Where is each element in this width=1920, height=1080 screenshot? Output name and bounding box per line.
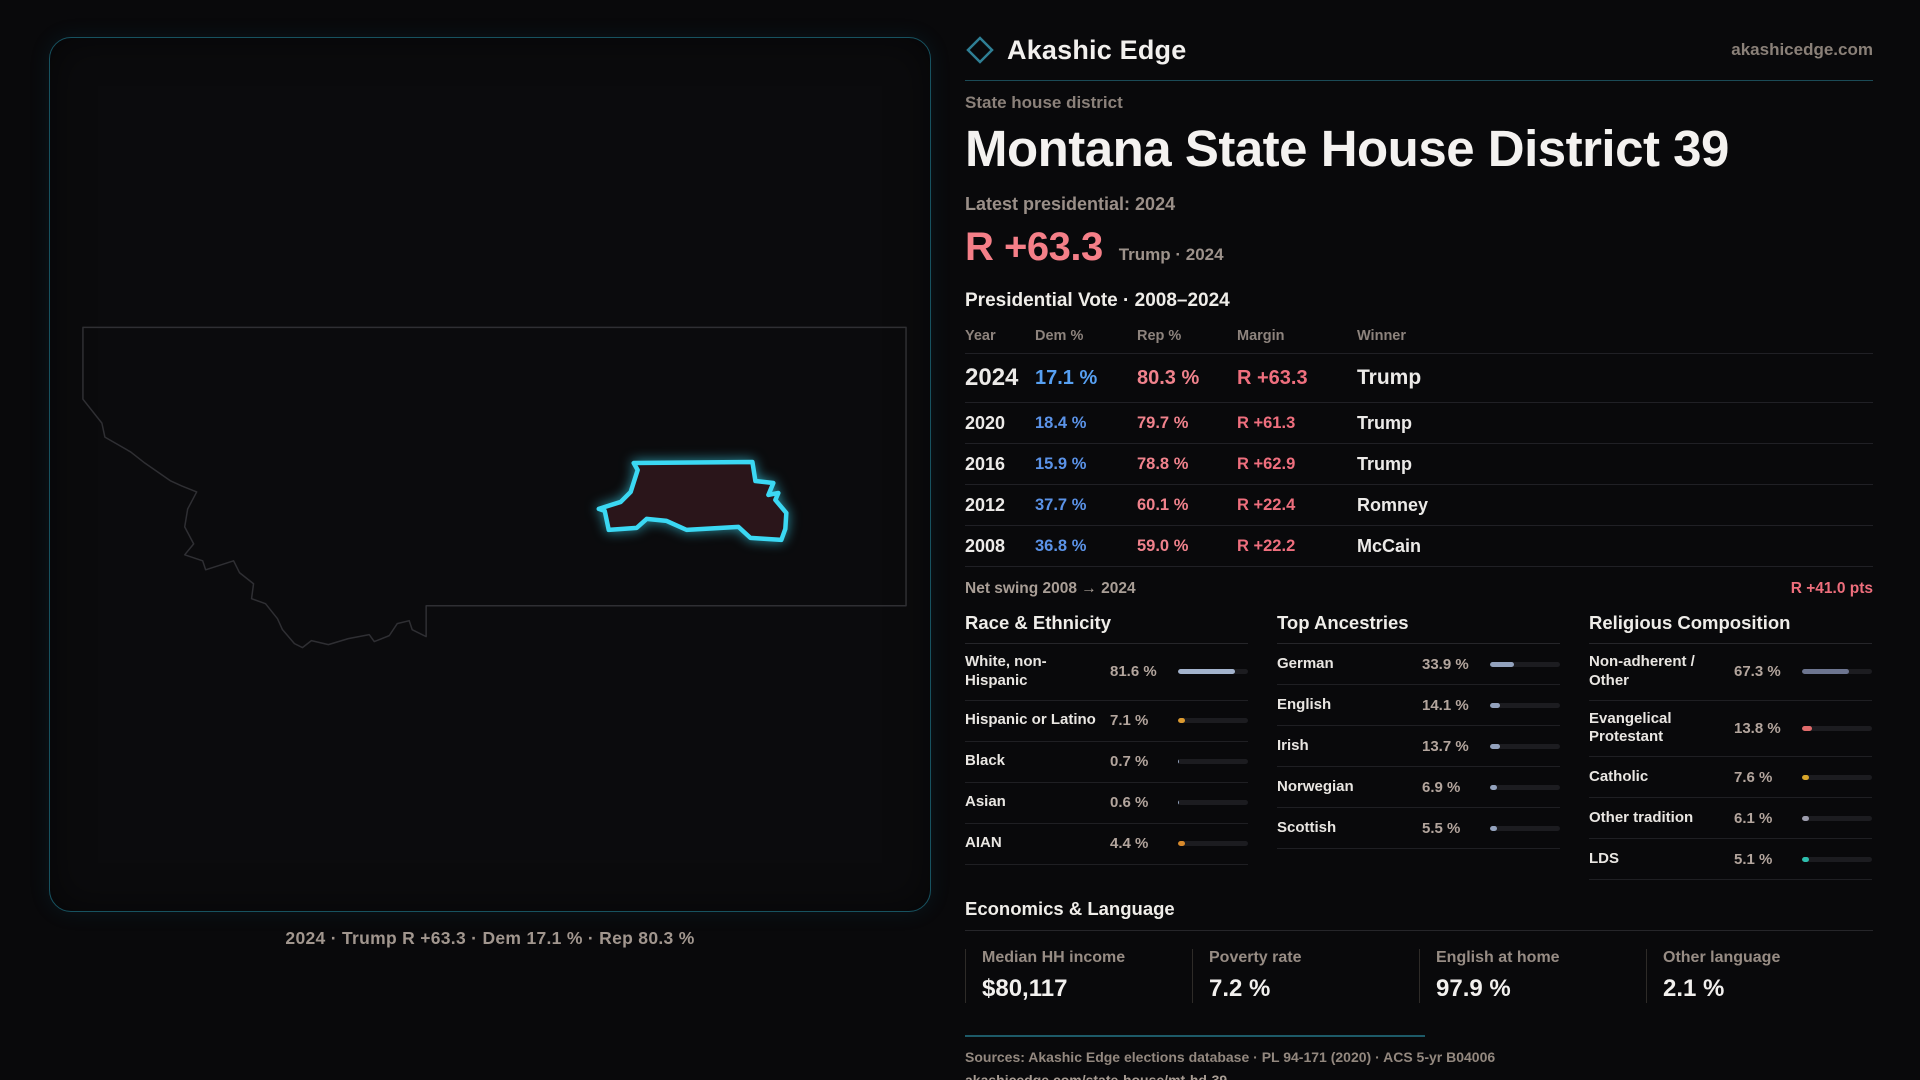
section-title: Top Ancestries: [1277, 612, 1560, 644]
bar-track: [1490, 785, 1560, 790]
bar-track: [1490, 662, 1560, 667]
margin-cell: R +63.3: [1237, 367, 1357, 390]
econ-stat-value: 7.2 %: [1209, 975, 1419, 1003]
dem-cell: 18.4 %: [1035, 414, 1137, 433]
latest-presidential-label: Latest presidential: 2024: [965, 194, 1873, 215]
stat-value: 7.6 %: [1734, 769, 1794, 786]
econ-stat-value: $80,117: [982, 975, 1192, 1003]
bar-track: [1178, 841, 1248, 846]
headline-margin-row: R +63.3 Trump · 2024: [965, 225, 1873, 270]
stat-bar-row: Norwegian6.9 %: [1277, 767, 1560, 808]
stat-label: Evangelical Protestant: [1589, 710, 1726, 748]
bar-fill: [1802, 726, 1812, 731]
demo-section: Religious CompositionNon-adherent / Othe…: [1589, 612, 1872, 880]
stat-label: Scottish: [1277, 819, 1414, 838]
permalink[interactable]: akashicedge.com/state-house/mt-hd-39: [965, 1072, 1227, 1080]
stat-bar-row: English14.1 %: [1277, 685, 1560, 726]
demo-section: Top AncestriesGerman33.9 %English14.1 %I…: [1277, 612, 1560, 880]
net-swing-value: R +41.0 pts: [1791, 580, 1873, 598]
table-row: 202417.1 %80.3 %R +63.3Trump: [965, 354, 1873, 403]
stat-bar-row: Evangelical Protestant13.8 %: [1589, 701, 1872, 758]
col-header-margin: Margin: [1237, 328, 1357, 344]
stat-value: 6.9 %: [1422, 779, 1482, 796]
bar-track: [1178, 669, 1248, 674]
map-pane: 2024 · Trump R +63.3 · Dem 17.1 % · Rep …: [49, 37, 931, 1080]
bar-fill: [1490, 744, 1500, 749]
econ-stat-label: English at home: [1436, 949, 1646, 967]
map-panel: [49, 37, 931, 912]
stat-value: 14.1 %: [1422, 697, 1482, 714]
montana-map: [50, 38, 930, 911]
bar-fill: [1490, 703, 1500, 708]
stat-label: German: [1277, 655, 1414, 674]
net-swing-row: Net swing 2008 → 2024 R +41.0 pts: [965, 567, 1873, 598]
year-cell: 2012: [965, 495, 1035, 516]
stat-bar-row: Scottish5.5 %: [1277, 808, 1560, 849]
stat-value: 5.1 %: [1734, 851, 1794, 868]
col-header-winner: Winner: [1357, 328, 1873, 344]
econ-stat: Other language2.1 %: [1646, 949, 1873, 1003]
stat-label: Hispanic or Latino: [965, 711, 1102, 730]
diamond-logo-icon: [965, 35, 995, 65]
map-caption: 2024 · Trump R +63.3 · Dem 17.1 % · Rep …: [49, 928, 931, 949]
site-link[interactable]: akashicedge.com: [1731, 40, 1873, 60]
bar-fill: [1802, 669, 1849, 674]
margin-cell: R +22.4: [1237, 496, 1357, 515]
winner-cell: Trump: [1357, 454, 1873, 475]
year-cell: 2016: [965, 454, 1035, 475]
table-row: 201237.7 %60.1 %R +22.4Romney: [965, 485, 1873, 526]
col-header-year: Year: [965, 328, 1035, 344]
stat-label: AIAN: [965, 834, 1102, 853]
stat-value: 5.5 %: [1422, 820, 1482, 837]
bar-fill: [1490, 826, 1497, 831]
table-row: 202018.4 %79.7 %R +61.3Trump: [965, 403, 1873, 444]
headline-margin-context: Trump · 2024: [1119, 245, 1224, 265]
table-row: 201615.9 %78.8 %R +62.9Trump: [965, 444, 1873, 485]
page-title: Montana State House District 39: [965, 119, 1873, 178]
margin-cell: R +62.9: [1237, 455, 1357, 474]
bar-track: [1490, 744, 1560, 749]
brand-name: Akashic Edge: [1007, 35, 1186, 66]
econ-stat-label: Median HH income: [982, 949, 1192, 967]
rep-cell: 80.3 %: [1137, 367, 1237, 390]
rep-cell: 60.1 %: [1137, 496, 1237, 515]
bar-fill: [1178, 669, 1235, 674]
bar-track: [1490, 826, 1560, 831]
stat-value: 6.1 %: [1734, 810, 1794, 827]
rep-cell: 79.7 %: [1137, 414, 1237, 433]
section-title: Religious Composition: [1589, 612, 1872, 644]
stat-bar-row: Non-adherent / Other67.3 %: [1589, 644, 1872, 701]
district-39-shape: [599, 462, 787, 540]
brand-row: Akashic Edge akashicedge.com: [965, 30, 1873, 70]
winner-cell: Trump: [1357, 413, 1873, 434]
econ-stat-label: Poverty rate: [1209, 949, 1419, 967]
stat-value: 33.9 %: [1422, 656, 1482, 673]
winner-cell: McCain: [1357, 536, 1873, 557]
economics-section: Economics & Language Median HH income$80…: [965, 898, 1873, 1003]
bar-track: [1802, 775, 1872, 780]
footer: Sources: Akashic Edge elections database…: [965, 1035, 1873, 1080]
year-cell: 2008: [965, 536, 1035, 557]
econ-stat-value: 97.9 %: [1436, 975, 1646, 1003]
bar-track: [1802, 857, 1872, 862]
bar-fill: [1490, 662, 1514, 667]
bar-fill: [1178, 718, 1185, 723]
header-divider: [965, 80, 1873, 81]
bar-fill: [1802, 857, 1809, 862]
stat-value: 0.7 %: [1110, 753, 1170, 770]
content-pane: Akashic Edge akashicedge.com State house…: [965, 30, 1873, 1080]
sources-line: Sources: Akashic Edge elections database…: [965, 1049, 1873, 1065]
margin-cell: R +22.2: [1237, 537, 1357, 556]
dem-cell: 17.1 %: [1035, 367, 1137, 390]
stat-value: 13.8 %: [1734, 720, 1794, 737]
winner-cell: Trump: [1357, 366, 1873, 390]
col-header-dem: Dem %: [1035, 328, 1137, 344]
footer-divider: [965, 1035, 1425, 1037]
stat-bar-row: Asian0.6 %: [965, 783, 1248, 824]
stat-bar-row: Catholic7.6 %: [1589, 757, 1872, 798]
stat-bar-row: Irish13.7 %: [1277, 726, 1560, 767]
econ-stat: Poverty rate7.2 %: [1192, 949, 1419, 1003]
bar-fill: [1178, 841, 1185, 846]
stat-bar-row: LDS5.1 %: [1589, 839, 1872, 880]
bar-track: [1490, 703, 1560, 708]
stat-value: 4.4 %: [1110, 835, 1170, 852]
page: 2024 · Trump R +63.3 · Dem 17.1 % · Rep …: [0, 0, 1920, 1080]
bar-track: [1178, 800, 1248, 805]
table-row: 200836.8 %59.0 %R +22.2McCain: [965, 526, 1873, 567]
econ-stat: English at home97.9 %: [1419, 949, 1646, 1003]
demo-section: Race & EthnicityWhite, non-Hispanic81.6 …: [965, 612, 1248, 880]
stat-label: White, non-Hispanic: [965, 653, 1102, 691]
bar-fill: [1802, 816, 1809, 821]
econ-stat: Median HH income$80,117: [965, 949, 1192, 1003]
stat-bar-row: Hispanic or Latino7.1 %: [965, 701, 1248, 742]
dem-cell: 15.9 %: [1035, 455, 1137, 474]
stat-bar-row: White, non-Hispanic81.6 %: [965, 644, 1248, 701]
headline-margin-value: R +63.3: [965, 225, 1103, 270]
stat-label: Black: [965, 752, 1102, 771]
dem-cell: 36.8 %: [1035, 537, 1137, 556]
rep-cell: 78.8 %: [1137, 455, 1237, 474]
dem-cell: 37.7 %: [1035, 496, 1137, 515]
stat-bar-row: Other tradition6.1 %: [1589, 798, 1872, 839]
stat-label: Irish: [1277, 737, 1414, 756]
demographics-columns: Race & EthnicityWhite, non-Hispanic81.6 …: [965, 612, 1873, 880]
bar-track: [1802, 669, 1872, 674]
stat-value: 81.6 %: [1110, 663, 1170, 680]
bar-track: [1178, 718, 1248, 723]
stat-label: Non-adherent / Other: [1589, 653, 1726, 691]
winner-cell: Romney: [1357, 495, 1873, 516]
stat-value: 67.3 %: [1734, 663, 1794, 680]
bar-fill: [1802, 775, 1809, 780]
stat-label: Catholic: [1589, 768, 1726, 787]
stat-label: Norwegian: [1277, 778, 1414, 797]
stat-bar-row: AIAN4.4 %: [965, 824, 1248, 865]
econ-stats: Median HH income$80,117Poverty rate7.2 %…: [965, 949, 1873, 1003]
stat-label: English: [1277, 696, 1414, 715]
vote-table: Year Dem % Rep % Margin Winner 202417.1 …: [965, 328, 1873, 567]
rep-cell: 59.0 %: [1137, 537, 1237, 556]
economics-title: Economics & Language: [965, 898, 1873, 931]
stat-bar-row: Black0.7 %: [965, 742, 1248, 783]
bar-track: [1802, 816, 1872, 821]
montana-state-outline: [83, 327, 906, 647]
year-cell: 2020: [965, 413, 1035, 434]
stat-label: Other tradition: [1589, 809, 1726, 828]
stat-value: 13.7 %: [1422, 738, 1482, 755]
stat-value: 7.1 %: [1110, 712, 1170, 729]
year-cell: 2024: [965, 364, 1035, 392]
econ-stat-label: Other language: [1663, 949, 1873, 967]
bar-track: [1178, 759, 1248, 764]
stat-label: Asian: [965, 793, 1102, 812]
margin-cell: R +61.3: [1237, 414, 1357, 433]
stat-bar-row: German33.9 %: [1277, 644, 1560, 685]
bar-fill: [1490, 785, 1497, 790]
net-swing-label: Net swing 2008 → 2024: [965, 580, 1136, 598]
vote-table-title: Presidential Vote · 2008–2024: [965, 290, 1873, 312]
econ-stat-value: 2.1 %: [1663, 975, 1873, 1003]
bar-track: [1802, 726, 1872, 731]
vote-table-header: Year Dem % Rep % Margin Winner: [965, 328, 1873, 354]
vote-rows: 202417.1 %80.3 %R +63.3Trump202018.4 %79…: [965, 354, 1873, 567]
district-type-label: State house district: [965, 93, 1873, 113]
col-header-rep: Rep %: [1137, 328, 1237, 344]
stat-label: LDS: [1589, 850, 1726, 869]
section-title: Race & Ethnicity: [965, 612, 1248, 644]
stat-value: 0.6 %: [1110, 794, 1170, 811]
